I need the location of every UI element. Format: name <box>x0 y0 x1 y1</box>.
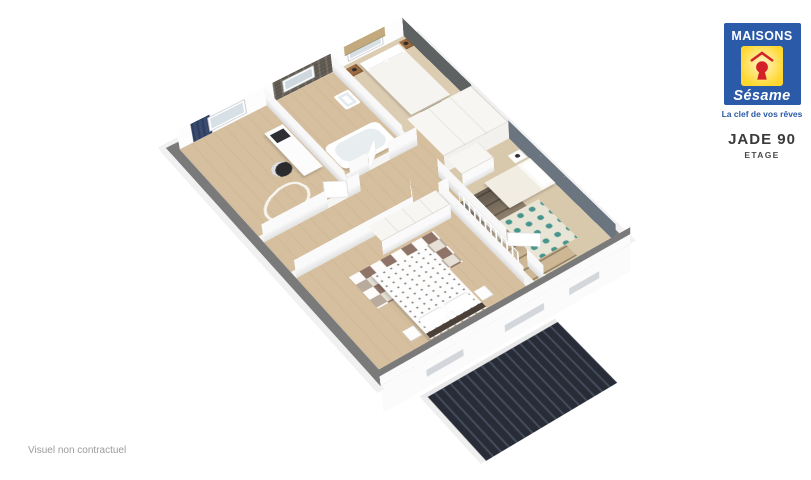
maisons-sesame-logo: MAISONS Sésame <box>724 23 801 105</box>
plan-subtitle: ETAGE <box>712 150 811 160</box>
facade-window-reveal <box>569 271 599 295</box>
keyhole-icon <box>745 49 779 83</box>
floorplan-scene <box>0 0 811 480</box>
screenshot-canvas: MAISONS Sésame La clef de vos rêves JADE… <box>0 0 811 480</box>
roof-outline-icon <box>752 53 772 60</box>
disclaimer-text: Visuel non contractuel <box>28 445 126 456</box>
brand-block: MAISONS Sésame La clef de vos rêves JADE… <box>712 18 811 160</box>
plan-title: JADE 90 <box>712 131 811 148</box>
logo-text-sesame: Sésame <box>733 88 790 104</box>
facade-window-reveal <box>426 349 463 377</box>
brand-tagline: La clef de vos rêves <box>712 109 811 119</box>
logo-icon-box <box>741 46 783 86</box>
floorplan-3d <box>166 27 630 386</box>
logo-text-maisons: MAISONS <box>731 29 792 43</box>
